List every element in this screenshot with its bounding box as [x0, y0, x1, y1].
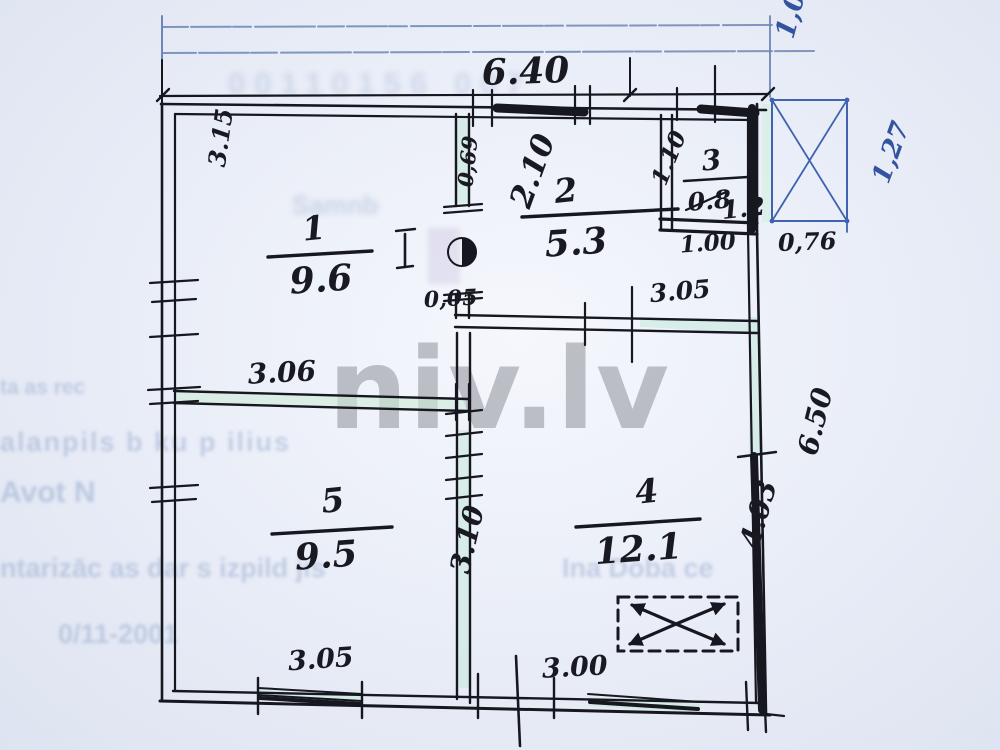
dim-porch-width: 0,76	[777, 226, 837, 257]
room2-area: 5.3	[543, 219, 608, 265]
hatch-opening-symbol	[618, 597, 738, 651]
dim-left-height: 3.15	[202, 107, 239, 169]
porch-crossed-box	[770, 98, 850, 232]
door-swing-symbol	[428, 228, 476, 284]
watermark-niv-lv: niv.lv	[328, 325, 670, 455]
dim-porch-height: 1,27	[866, 118, 916, 188]
room3-number: 3	[700, 143, 723, 178]
dim-bottom-right: 3.00	[541, 650, 609, 684]
dim-right-inner: 4.03	[733, 477, 784, 552]
scanned-floor-plan-page: 00110156 007 Samnb ta as rec alanpils b …	[0, 0, 1000, 750]
dim-center-wall: 3.10	[443, 502, 491, 576]
room1-fraction-line	[268, 251, 372, 257]
dim-top-right: 1,00	[770, 0, 817, 42]
room1-number: 1	[300, 207, 327, 248]
room4-number: 4	[633, 471, 660, 512]
dim-mid-wall: 3.06	[247, 354, 317, 391]
dim-door-width: 0,69	[452, 134, 482, 188]
room5-area: 9.5	[293, 532, 358, 578]
room3-fraction-line	[684, 177, 748, 181]
door-section-mark	[396, 229, 415, 268]
dim-top-width: 6.40	[481, 49, 570, 94]
dim-room3-width: 1.00	[679, 228, 737, 259]
room5-number: 5	[319, 480, 346, 521]
ghost-address-line1: ta as rec	[0, 376, 86, 399]
ghost-date: 0/11-2001	[58, 619, 178, 649]
floor-plan-svg: 00110156 007 Samnb ta as rec alanpils b …	[0, 0, 1000, 750]
room5-fraction-line	[272, 527, 392, 534]
room2-fraction-line	[522, 209, 678, 217]
ghost-address-line2: alanpils b ku p ilius	[0, 427, 291, 457]
room3-area-new: 1.2	[720, 192, 766, 225]
room4-fraction-line	[576, 519, 700, 527]
ghost-address-line3: Avot N	[0, 476, 96, 509]
room2-number: 2	[551, 170, 579, 211]
dim-door-offset: 0,05	[423, 284, 478, 313]
dim-bottom-window: 3.05	[287, 642, 355, 678]
dim-right-outer: 6.50	[791, 384, 840, 459]
dim-hall-width: 3.05	[648, 274, 711, 308]
room4-area: 12.1	[593, 525, 683, 573]
room1-area: 9.6	[288, 256, 353, 302]
